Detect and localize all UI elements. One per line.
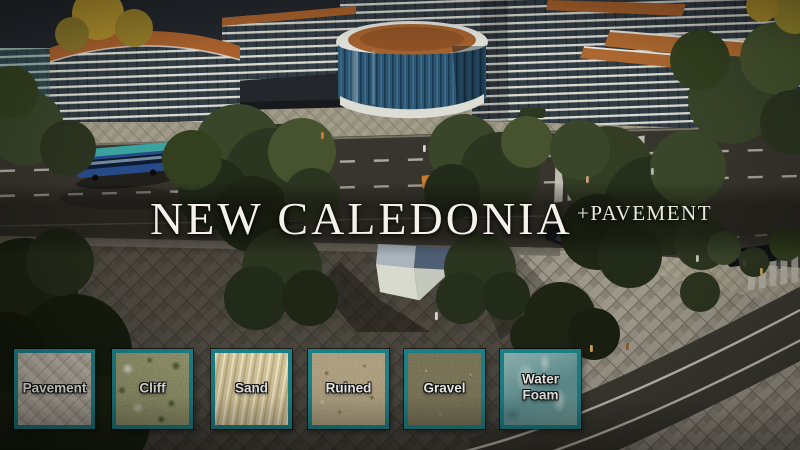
palm-canopy bbox=[115, 9, 153, 47]
texture-swatch-water-foam[interactable]: Water Foam bbox=[500, 349, 581, 429]
texture-swatch-ruined[interactable]: Ruined bbox=[308, 349, 389, 429]
texture-swatch-cliff[interactable]: Cliff bbox=[112, 349, 193, 429]
gravel-texture-image bbox=[408, 353, 481, 425]
texture-swatch-sand[interactable]: Sand bbox=[211, 349, 292, 429]
sand-texture-image bbox=[215, 353, 288, 425]
water-foam-texture-image bbox=[504, 353, 577, 425]
ruined-texture-image bbox=[312, 353, 385, 425]
glass-tower bbox=[336, 21, 488, 118]
palm-canopy bbox=[55, 17, 89, 51]
map-theme-title: NEW CALEDONIA bbox=[150, 196, 573, 242]
texture-swatch-gravel[interactable]: Gravel bbox=[404, 349, 485, 429]
pavement-texture-image bbox=[18, 353, 91, 425]
texture-swatch-pavement[interactable]: Pavement bbox=[14, 349, 95, 429]
building-left-curved bbox=[44, 46, 240, 122]
map-theme-addon-tag: +PAVEMENT bbox=[577, 203, 712, 224]
cliff-texture-image bbox=[116, 353, 189, 425]
map-theme-preview: NEW CALEDONIA +PAVEMENT Pavement Cliff S… bbox=[0, 0, 800, 450]
